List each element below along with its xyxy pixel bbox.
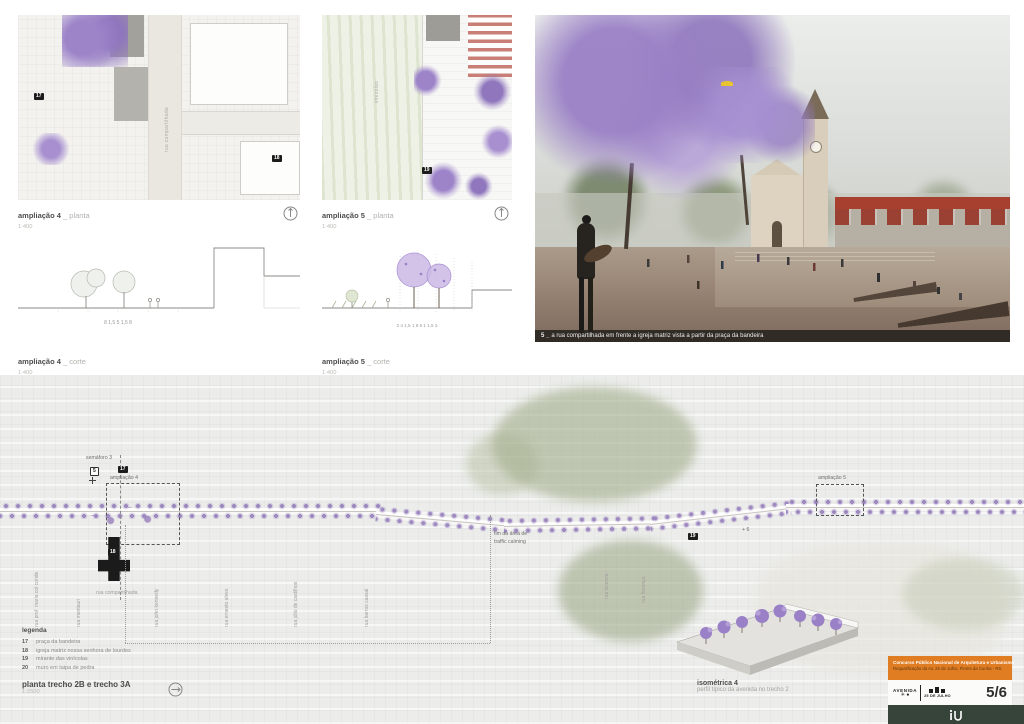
logo-symbols: ✳ ●: [901, 693, 910, 698]
avenida-logo: AVENIDA ✳ ●: [893, 688, 917, 698]
north-arrow-east-icon: [168, 682, 183, 697]
marker-19: 19: [422, 167, 432, 174]
amp5-corte-label: ampliação 5 _ corte 1:400: [322, 350, 390, 377]
amp4-plan-drawing: rua compartilhada 17 18: [18, 15, 300, 200]
level-label: + 6: [742, 527, 749, 533]
avenue-segment: [0, 503, 382, 519]
jacaranda-canopies: [414, 61, 512, 200]
street-label: rua john kennedy: [154, 547, 160, 627]
competition-board: rua compartilhada 17 18 ampliação 4 _ pl…: [0, 0, 1024, 724]
logo-divider: [920, 685, 921, 701]
street-name-label: rua compartilhada: [164, 107, 170, 152]
figure-leg: [579, 277, 584, 335]
amp4-callout-box: [106, 483, 180, 545]
amp4-corte-label: ampliação 4 _ corte 1:400: [18, 350, 86, 377]
titleblock-banner: Concurso Público Nacional de Arquitetura…: [888, 656, 1012, 680]
paraglider: [721, 81, 733, 86]
amp4-section-drawing: 8 1,5 5 1,5 8: [18, 232, 300, 346]
traffic-calming-boundary: [490, 515, 491, 643]
render-caption: 5 _a rua compartilhada em frente a igrej…: [535, 330, 1010, 342]
footer-band: [888, 705, 1024, 724]
sheet-number: 5/6: [986, 684, 1007, 701]
legend-item: 17 praça da bandeira: [22, 638, 131, 647]
jacaranda-tree: [685, 67, 815, 163]
amp5-section-drawing: 2 4 1,5 1 6 6 1 1,5 3: [322, 228, 512, 346]
caption-number: 5 _: [541, 333, 549, 339]
street-label: rua vicenza: [604, 543, 610, 599]
legend-item: 18 igreja matriz nossa senhora de lourde…: [22, 647, 131, 656]
footer-logo-icon: [948, 709, 964, 721]
green-area: [903, 558, 1024, 630]
green-area: [466, 433, 538, 495]
legend: legenda 17 praça da bandeira 18 igreja m…: [22, 627, 131, 672]
jacaranda-canopy: [32, 133, 70, 165]
street-label: rua florença: [641, 547, 647, 603]
competition-title: Concurso Público Nacional de Arquitetura…: [893, 659, 1007, 666]
view-marker-icon: [89, 477, 96, 484]
traffic-calming-boundary: [125, 643, 490, 644]
building-block: [426, 15, 460, 41]
building-footprint: [240, 141, 300, 195]
figure-leg: [588, 277, 593, 333]
amp4-planta-label: ampliação 4 _ planta 1:400: [18, 204, 90, 231]
traffic-calming-label: fim da área de: [494, 531, 527, 537]
legend-title: legenda: [22, 627, 131, 634]
vineyard-rows: [322, 15, 422, 200]
marker-17: 17: [34, 93, 44, 100]
legend-item: 20 muro em taipa de pedra: [22, 664, 131, 673]
guitarist-figure: [571, 215, 615, 337]
skyline-icon: [929, 687, 945, 693]
viewpoint-marker-5: 5: [90, 467, 99, 476]
street-label: rua montauri: [76, 547, 82, 627]
north-arrow-icon: [283, 206, 298, 221]
amp4-callout-label: ampliação 4: [110, 475, 138, 481]
building-footprint: [190, 23, 288, 105]
legend-item: 19 mirante das vinícolas: [22, 655, 131, 664]
titleblock-brand: AVENIDA ✳ ● 25 DE JULHO 5/6: [888, 680, 1012, 705]
crowd-figures: [625, 251, 1005, 323]
semaforo-label: semáforo 3: [86, 455, 112, 461]
shared-street-label: rua compartilhada: [96, 590, 138, 596]
street-label: rua ernesto alves: [224, 547, 230, 627]
perspective-render: 5 _a rua compartilhada em frente a igrej…: [535, 15, 1010, 342]
marker-17: 17: [118, 466, 128, 473]
vineyard-label: vinícolas: [374, 81, 380, 103]
avenue-segment: [649, 500, 792, 532]
isometric-label: isométrica 4 perfil típico da avenida no…: [697, 680, 789, 693]
avenida-logo-right: 25 DE JULHO: [924, 687, 951, 698]
competition-subtitle: Requalificação da Av. 25 de Julho, Flore…: [893, 666, 1007, 671]
traffic-calming-label: traffic calming: [494, 539, 526, 545]
commercial-arcade: [835, 197, 1010, 249]
street-label: rua barros cassal: [364, 547, 370, 627]
amp5-callout-label: ampliação 5: [818, 475, 846, 481]
road-band: [182, 111, 300, 135]
caption-text: a rua compartilhada em frente a igreja m…: [551, 333, 763, 339]
amp5-plan-drawing: vinícolas 19: [322, 15, 512, 200]
svg-text:8 1,5 5 1,5 8: 8 1,5 5 1,5 8: [104, 320, 132, 326]
site-plan: semáforo 3 5 17 ampliação 4 18 fim da ár…: [0, 375, 1024, 724]
marker-18: 18: [108, 549, 118, 556]
marker-19: 19: [688, 533, 698, 540]
jacaranda-canopy: [62, 15, 128, 67]
traffic-calming-boundary: [125, 525, 126, 643]
street-label: rua júlio de castilhos: [293, 547, 299, 627]
site-plan-title: planta trecho 2B e trecho 3A 1:2500: [22, 680, 130, 695]
street-label: rua prof. maria col conde: [34, 547, 40, 627]
avenue-segment: [375, 506, 508, 533]
amp5-callout-box: [816, 484, 864, 516]
isometric-drawing: [662, 580, 872, 678]
svg-text:2 4 1,5 1 6 6: 2 4 1,5 1 6 6 1 1,5 3: [397, 323, 438, 328]
north-arrow-icon: [494, 206, 509, 221]
marker-18: 18: [272, 155, 282, 162]
